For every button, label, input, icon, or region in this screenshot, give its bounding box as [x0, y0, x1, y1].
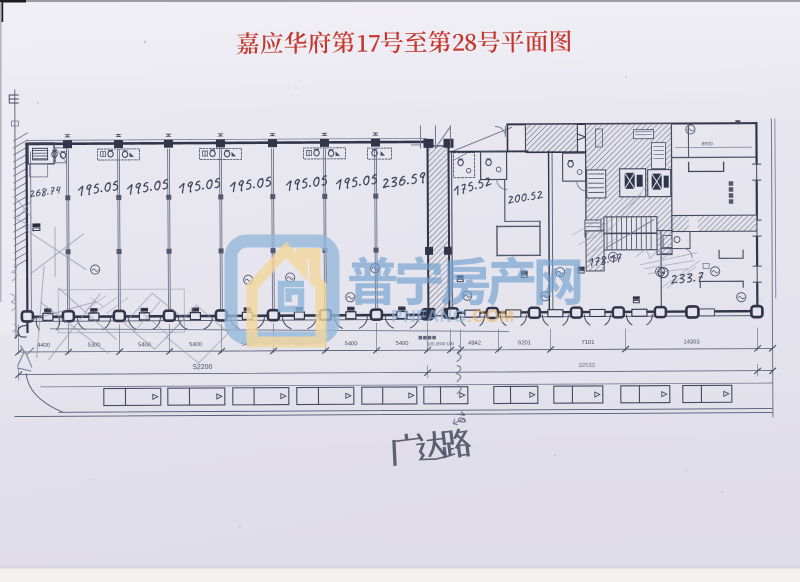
svg-text:5400: 5400: [138, 342, 151, 348]
svg-text:52200: 52200: [193, 364, 213, 371]
svg-text:6201: 6201: [518, 340, 531, 346]
svg-text:4400: 4400: [37, 343, 50, 349]
svg-text:4942: 4942: [468, 341, 481, 347]
svg-text:14303: 14303: [683, 339, 699, 345]
svg-text:8900: 8900: [701, 141, 712, 147]
svg-text:5400: 5400: [396, 341, 409, 347]
svg-text:32533: 32533: [578, 363, 595, 369]
svg-text:PNFANG.COM: PNFANG.COM: [391, 306, 515, 326]
svg-text:100 2500 100: 100 2500 100: [427, 341, 454, 346]
svg-text:5400: 5400: [345, 341, 358, 347]
svg-text:5400: 5400: [189, 342, 202, 348]
svg-text:7101: 7101: [582, 340, 595, 346]
